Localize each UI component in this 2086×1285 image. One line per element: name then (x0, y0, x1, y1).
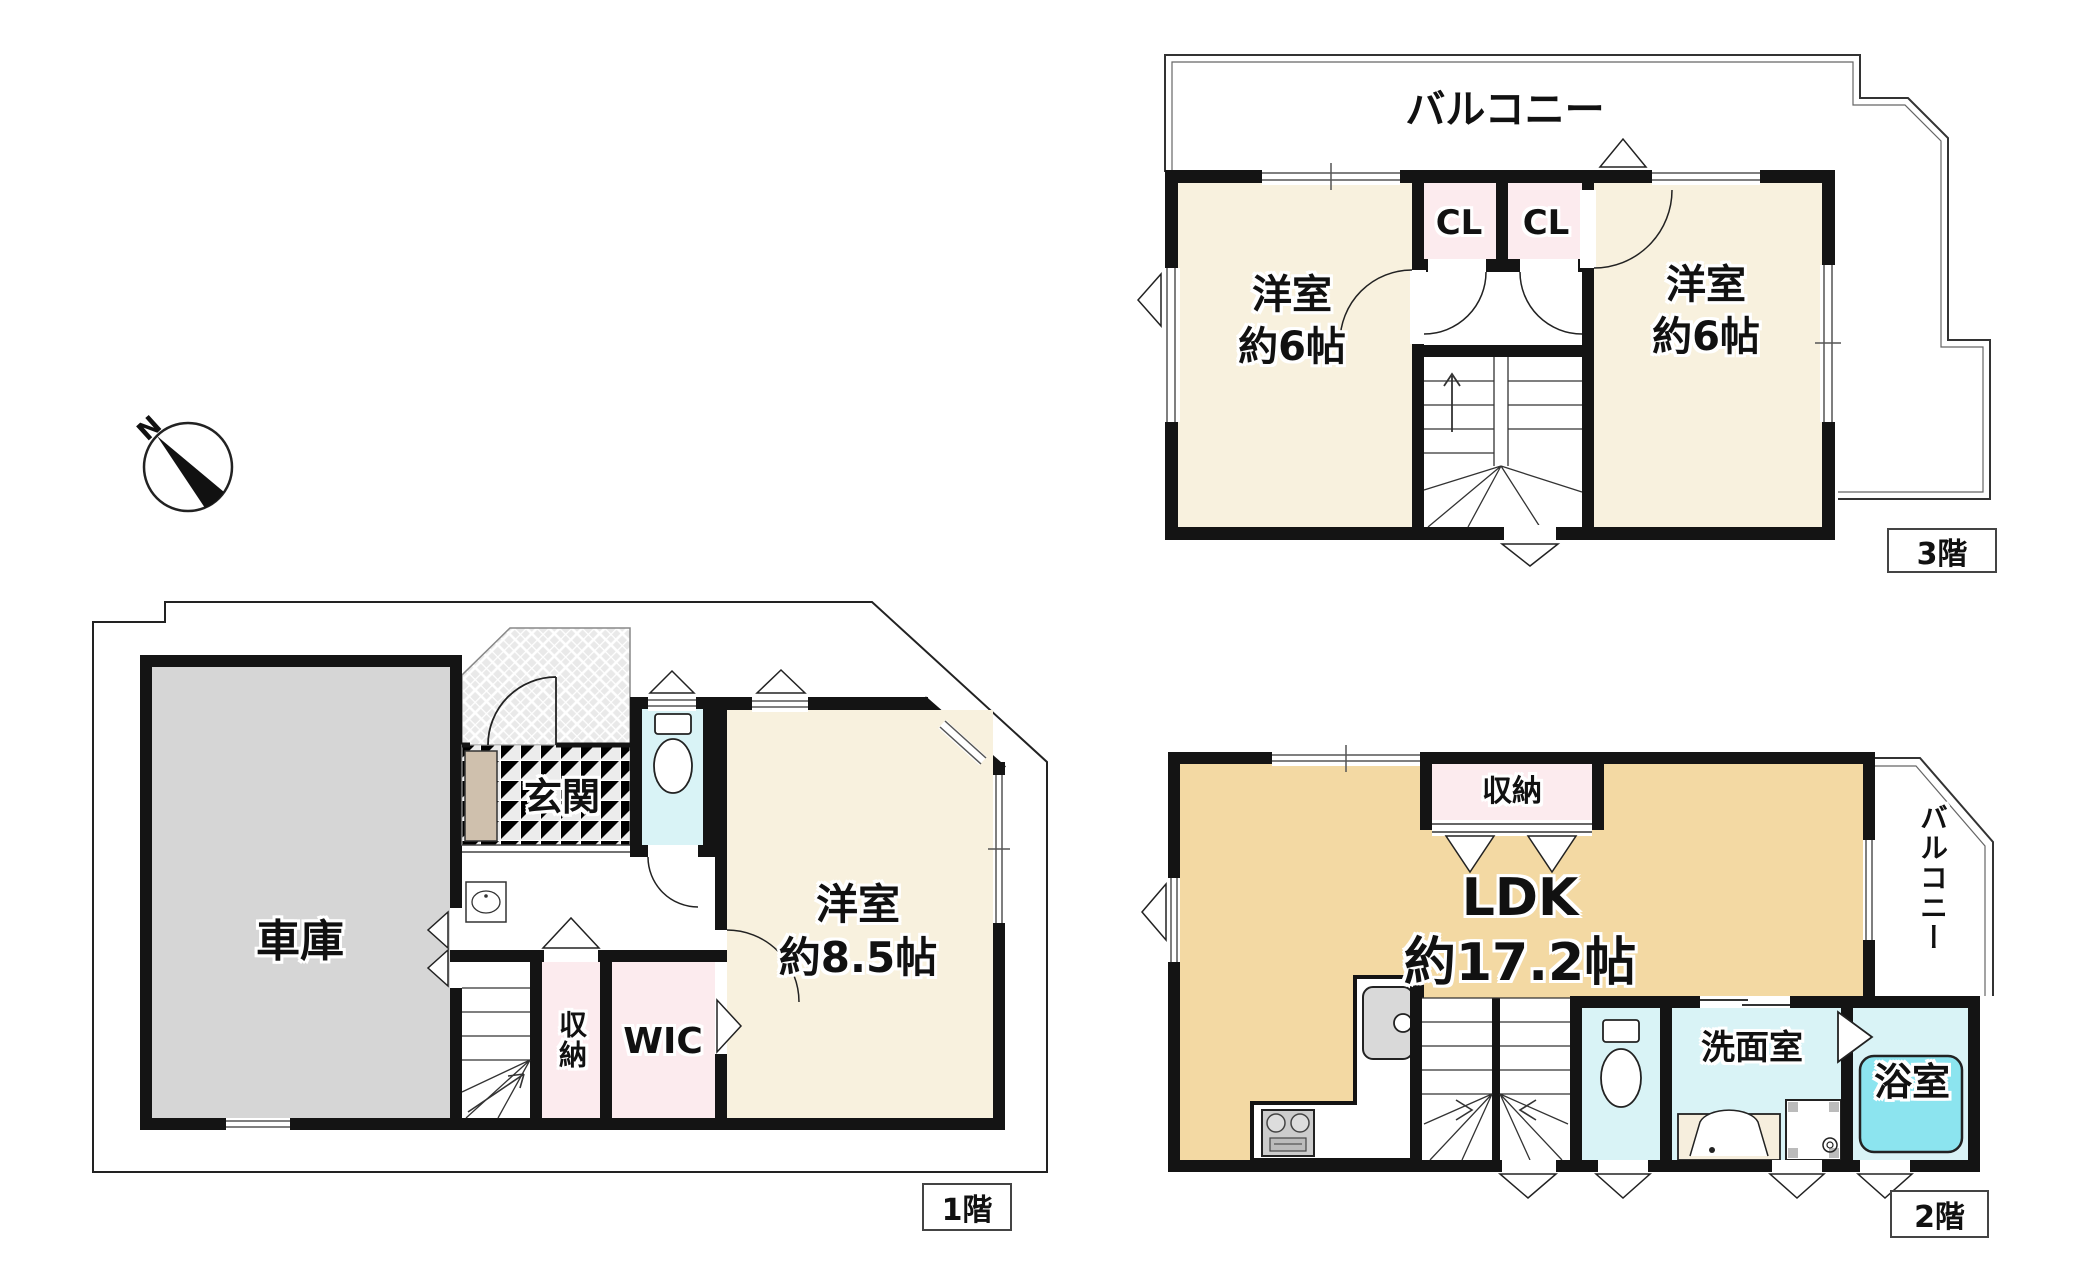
floor3-left-room-label: 洋室 (1252, 275, 1332, 315)
vanity-sink-fixture (1678, 1110, 1780, 1160)
floor1-garage-room (152, 667, 450, 1118)
floorplan-page: N (0, 0, 2086, 1285)
floor3-closet-b-label: CL (1523, 206, 1570, 240)
floor1-stairs (462, 988, 530, 1118)
floor2-tag: 2階 (1890, 1190, 1989, 1238)
floor1-wic-label: WIC (623, 1024, 703, 1060)
washing-machine-fixture (1786, 1100, 1841, 1160)
floor3-right-room-size-label: 約6帖 (1652, 317, 1760, 357)
hand-basin-fixture (466, 882, 506, 922)
toilet-fixture-1f (654, 714, 692, 793)
floor1-tag: 1階 (922, 1183, 1012, 1231)
floor1-entrance-label: 玄関 (524, 778, 600, 816)
floor3-tag: 3階 (1887, 528, 1997, 573)
floor3-balcony-label: バルコニー (1405, 90, 1604, 130)
floor1-western-room-label: 洋室 (816, 884, 900, 926)
toilet-fixture-2f (1601, 1020, 1641, 1107)
floor3-left-room-size-label: 約6帖 (1238, 327, 1346, 367)
compass-north-icon: N (132, 410, 232, 511)
floor1-shoe-cabinet (465, 751, 497, 841)
floor2-storage-label: 収納 (1482, 777, 1542, 807)
floor3-window-swing-marker (1600, 139, 1646, 167)
floor2-ldk-size-label: 約17.2帖 (1404, 937, 1636, 989)
stove-fixture (1262, 1110, 1314, 1156)
floor3-right-room-label: 洋室 (1666, 265, 1746, 305)
floor1-storage-label: 収納 (557, 1010, 585, 1070)
floor1-western-room-size-label: 約8.5帖 (779, 937, 937, 979)
floor1-plan (93, 602, 1047, 1172)
floor1-porch (462, 628, 630, 745)
floorplan-drawing: N (0, 0, 2086, 1285)
floor2-washroom-label: 洗面室 (1701, 1031, 1803, 1065)
floor1-garage-label: 車庫 (256, 920, 344, 964)
floor2-balcony-label: バルコニー (1918, 803, 1946, 953)
floor2-bathroom-label: 浴室 (1874, 1063, 1950, 1101)
floor3-closet-a-label: CL (1436, 206, 1483, 240)
floor2-ldk-label: LDK (1462, 872, 1579, 924)
